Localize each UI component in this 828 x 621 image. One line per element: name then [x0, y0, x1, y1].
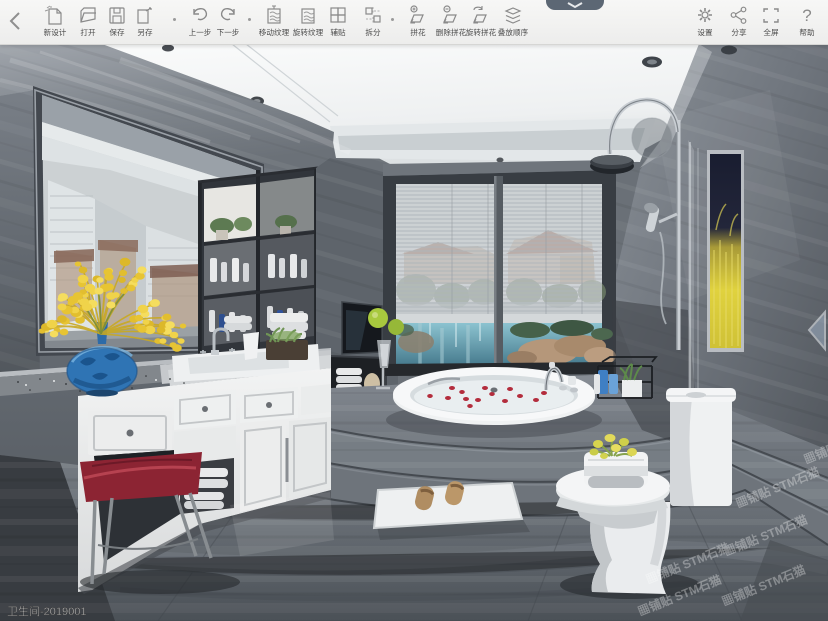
svg-text:卫生间-2019001: 卫生间-2019001: [7, 604, 87, 618]
svg-text:?: ?: [802, 6, 811, 25]
